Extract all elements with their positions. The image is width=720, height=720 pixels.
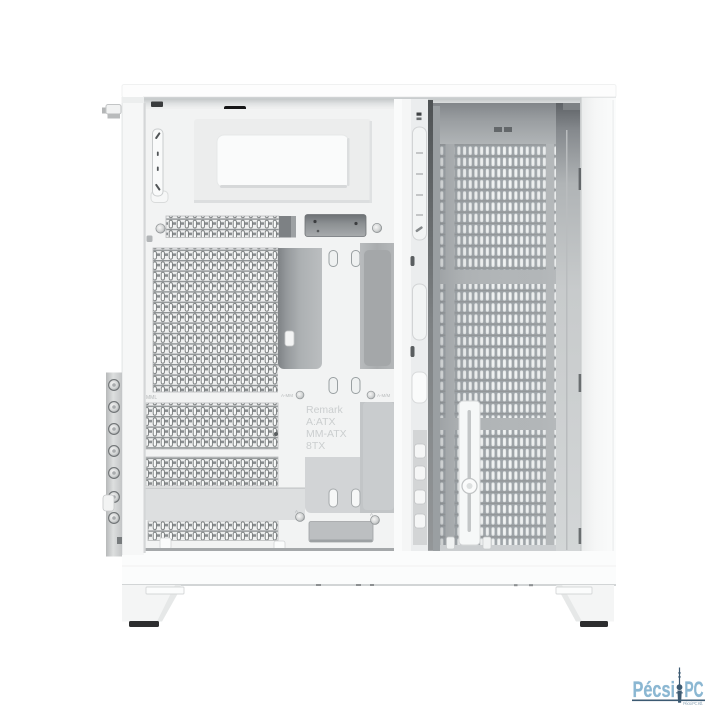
svg-text:A:ATX: A:ATX (306, 416, 336, 428)
svg-text:A: A (295, 509, 298, 514)
svg-text:Remark: Remark (306, 404, 344, 416)
svg-text:A-MM: A-MM (281, 393, 293, 398)
svg-text:A: A (370, 512, 373, 517)
svg-text:MM-ATX: MM-ATX (306, 428, 347, 440)
svg-text:Pécsi PC Kft.: Pécsi PC Kft. (683, 701, 703, 706)
svg-text:MML: MML (146, 395, 157, 401)
svg-text:Pécsi: Pécsi (633, 678, 676, 703)
svg-text:PC: PC (685, 677, 704, 702)
svg-text:8TX: 8TX (306, 440, 325, 452)
svg-text:A-M/M: A-M/M (377, 393, 390, 398)
